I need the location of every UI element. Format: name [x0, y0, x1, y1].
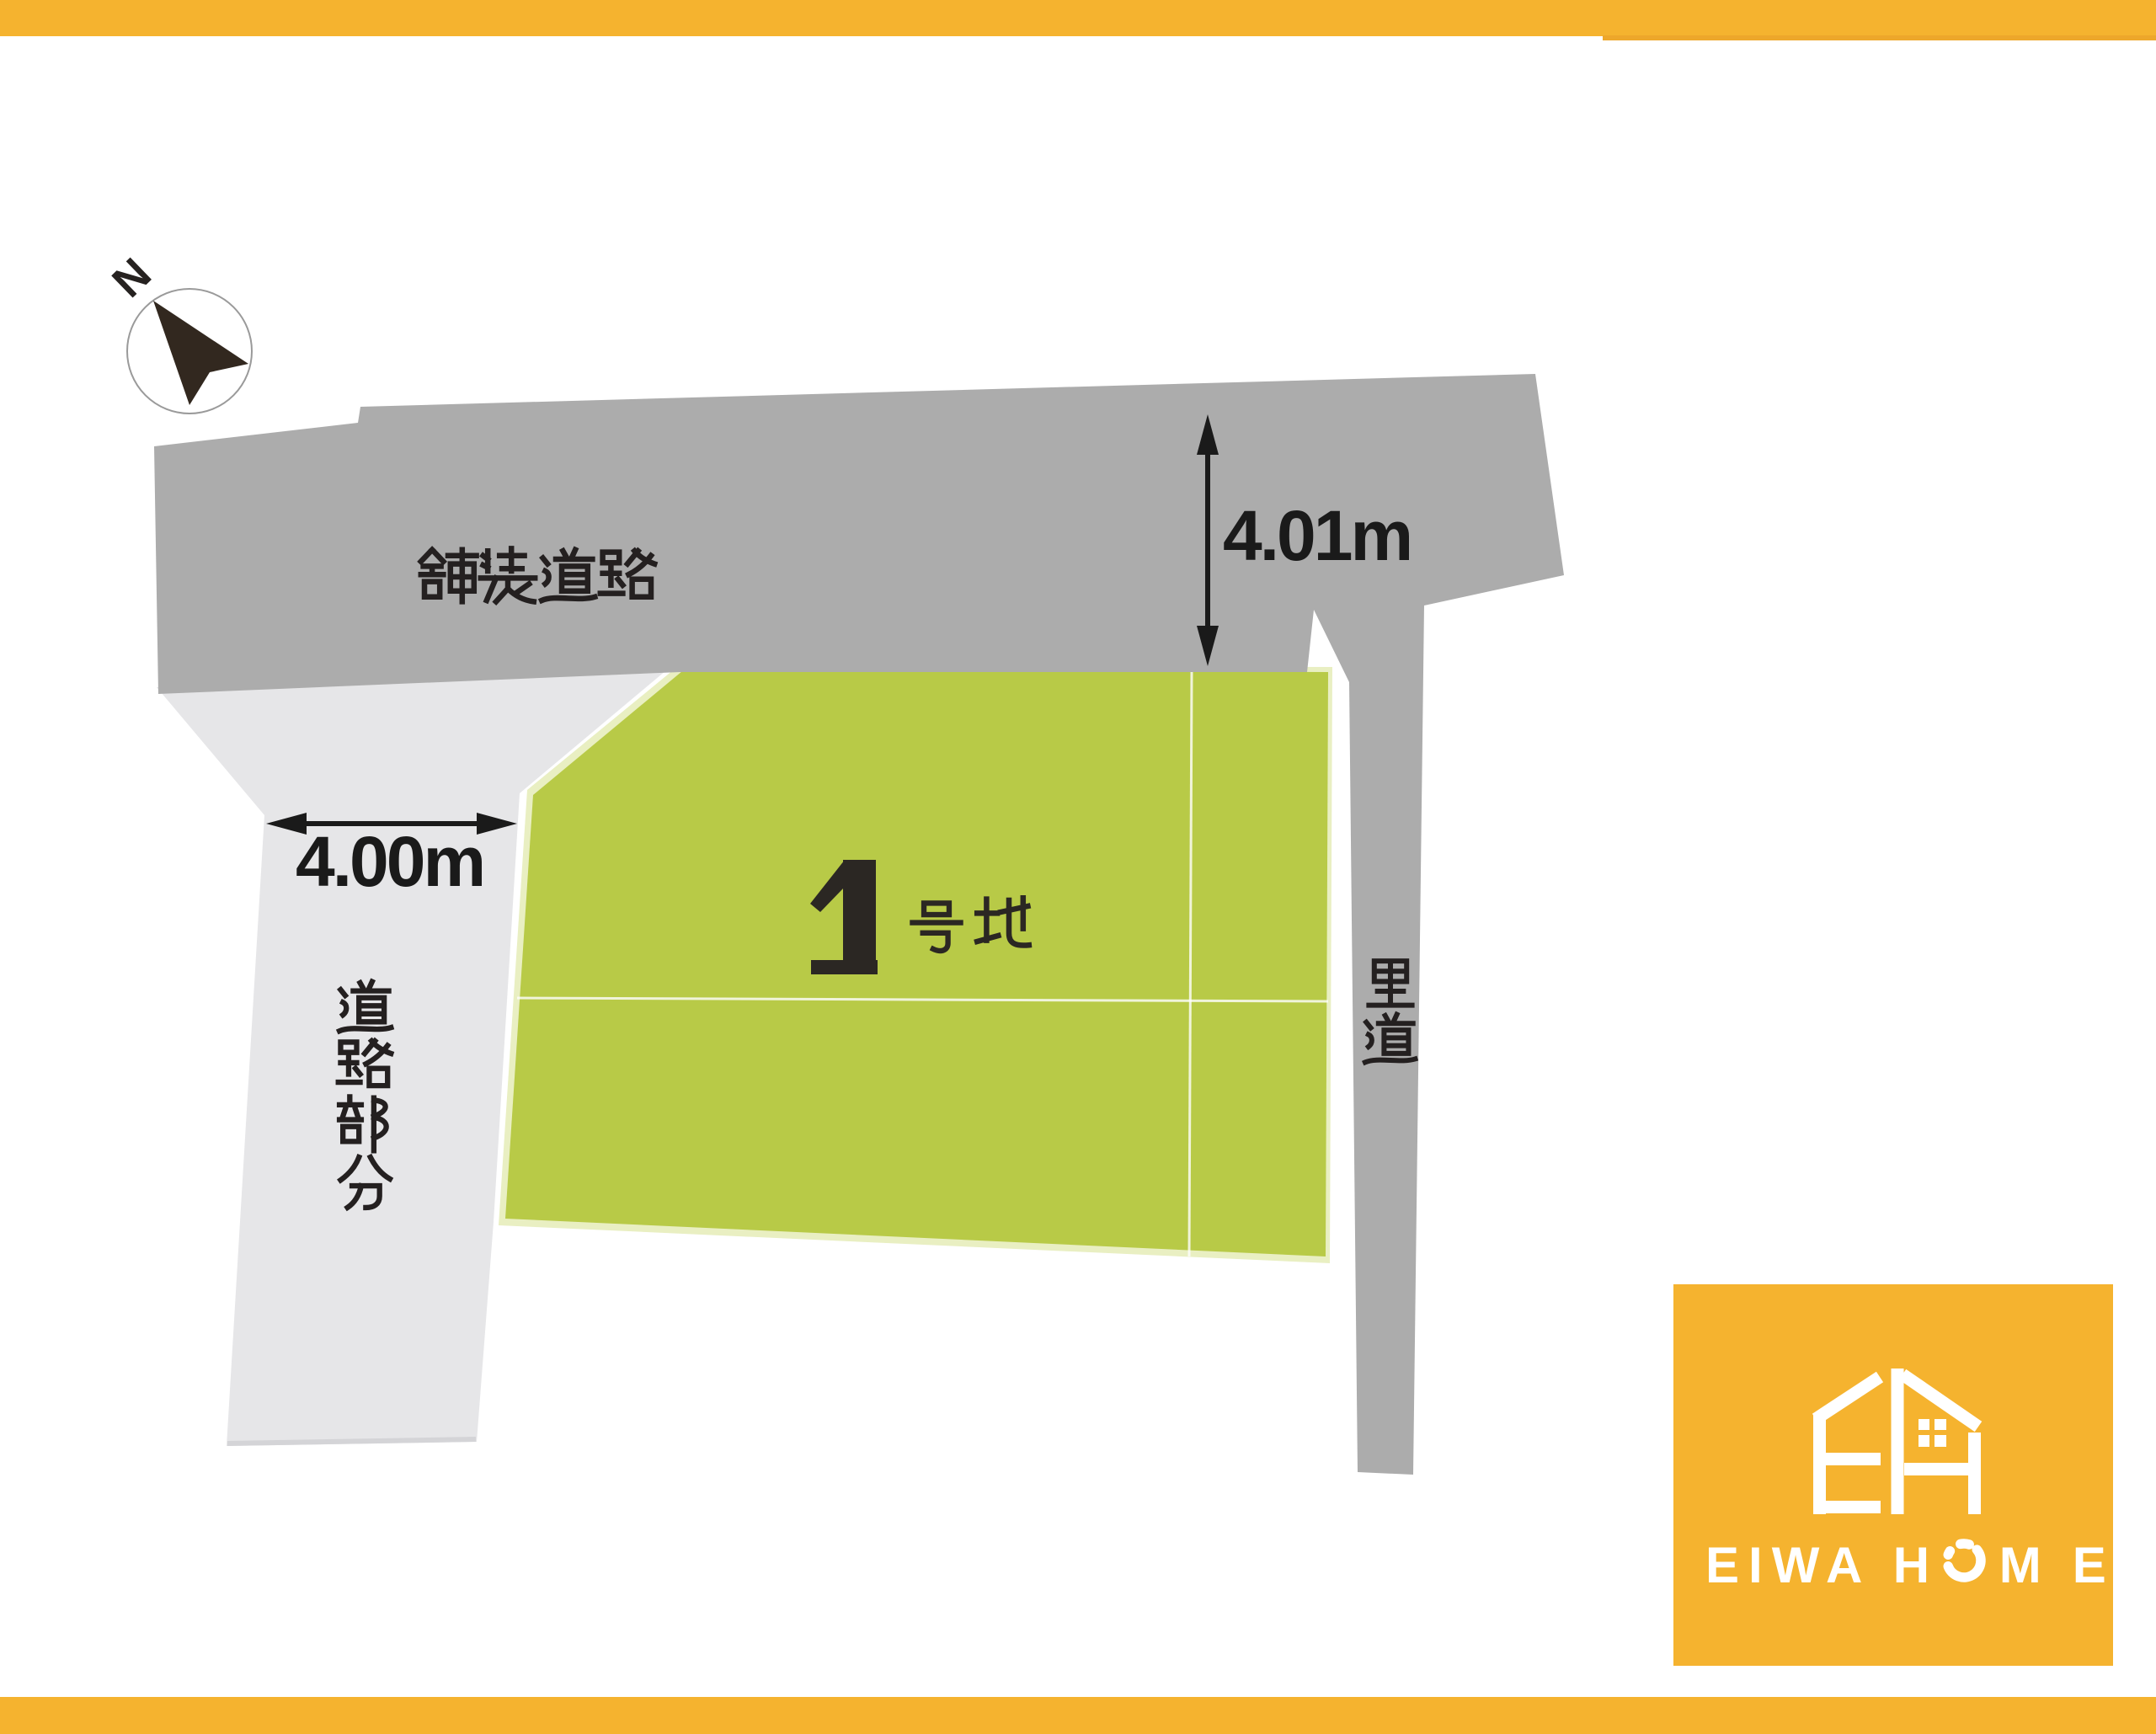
svg-text:4.01m: 4.01m: [1223, 496, 1411, 575]
svg-text:4.00m: 4.00m: [296, 822, 483, 901]
